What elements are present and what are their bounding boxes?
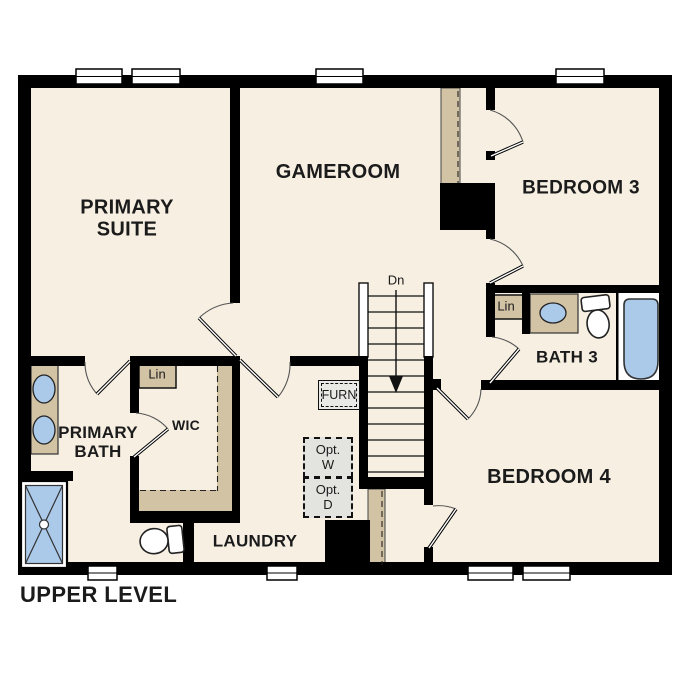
optional-dryer-line1: Opt. — [316, 483, 341, 498]
wic-label: WIC — [172, 418, 200, 434]
sink-symbol — [540, 303, 566, 323]
sink-symbol — [33, 375, 55, 403]
bathtub-symbol — [624, 299, 658, 379]
chase-symbol — [441, 88, 460, 184]
bath3-label: BATH 3 — [536, 347, 598, 366]
shower-symbol — [21, 481, 67, 568]
primary-bath-label: PRIMARY BATH — [58, 423, 138, 461]
gameroom-label: GAMEROOM — [276, 161, 401, 183]
bedroom4-label: BEDROOM 4 — [487, 466, 611, 488]
optional-washer-line2: W — [322, 458, 334, 473]
linen-label-bath3: Lin — [497, 300, 514, 315]
wic-shelf-symbol — [139, 490, 232, 512]
optional-dryer-line2: D — [323, 498, 332, 513]
optional-washer-box: Opt. W — [303, 437, 353, 478]
sink-symbol — [33, 416, 55, 444]
page-title: UPPER LEVEL — [20, 582, 177, 608]
optional-dryer-box: Opt. D — [303, 477, 353, 518]
optional-washer-line1: Opt. — [316, 443, 341, 458]
window-symbol — [523, 566, 570, 580]
window-symbol — [88, 566, 117, 580]
window-symbol — [468, 566, 513, 580]
window-symbol — [267, 566, 297, 580]
laundry-label: LAUNDRY — [213, 531, 298, 550]
window-symbol — [556, 69, 604, 84]
window-symbol — [316, 69, 363, 84]
stair-direction-label: Dn — [388, 274, 405, 289]
furnace-label: FURN — [322, 388, 357, 402]
floor-plan: PRIMARY SUITE GAMEROOM BEDROOM 3 BATH 3 … — [0, 0, 687, 687]
furnace-box: FURN — [318, 380, 360, 410]
window-symbol — [132, 69, 180, 84]
primary-suite-label: PRIMARY SUITE — [80, 197, 174, 242]
bedroom3-label: BEDROOM 3 — [522, 177, 640, 198]
window-symbol — [76, 69, 122, 84]
linen-label-primary: Lin — [148, 368, 165, 383]
